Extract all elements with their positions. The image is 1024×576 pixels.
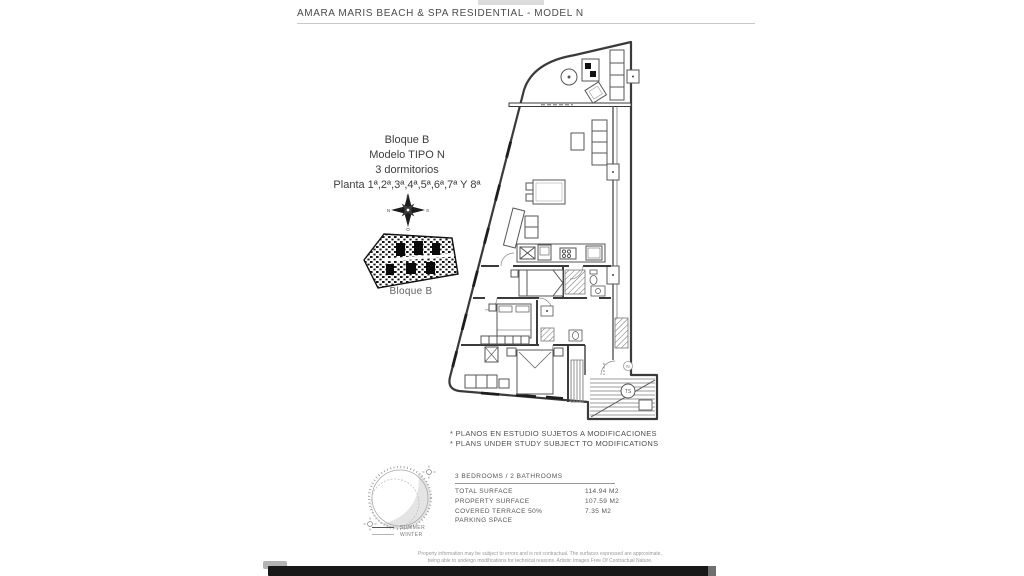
plan-note-en: * PLANS UNDER STUDY SUBJECT TO MODIFICAT… [450, 439, 658, 449]
horizontal-scrollbar[interactable] [268, 566, 716, 576]
row-label: PROPERTY SURFACE [455, 498, 529, 505]
table-row: COVERED TERRACE 50% 7.35 M2 [455, 508, 620, 518]
compass-letter-right: S [426, 208, 429, 213]
surface-table-header: 3 BEDROOMS / 2 BATHROOMS [455, 473, 620, 480]
disclaimer-line1: Property information may be subject to e… [312, 551, 768, 558]
page-top-edge [478, 0, 544, 5]
north-marker-label: N [626, 364, 629, 369]
service-shaft [571, 360, 583, 402]
floor-plan: TS N [441, 30, 665, 422]
row-label: TOTAL SURFACE [455, 488, 513, 495]
compass-letter-top: E [406, 194, 409, 199]
legend-summer: SUMMER [372, 524, 425, 531]
row-label: PARKING SPACE [455, 517, 512, 524]
legal-disclaimer: Property information may be subject to e… [312, 551, 768, 565]
legend-winter: WINTER [372, 531, 425, 538]
corridor-wardrobe [615, 318, 628, 348]
row-label: COVERED TERRACE 50% [455, 508, 542, 515]
scrollbar-tip [708, 566, 716, 576]
winter-line-swatch [372, 534, 394, 535]
stairs-circle-label: TS [625, 389, 632, 395]
plan-notes: * PLANOS EN ESTUDIO SUJETOS A MODIFICACI… [450, 429, 658, 449]
summer-line-swatch [372, 527, 394, 529]
row-value: 114.94 M2 [585, 488, 619, 495]
sun-icon-summer [423, 466, 436, 479]
compass-letter-left: N [387, 208, 390, 213]
row-value: 107.59 M2 [585, 498, 619, 505]
page-title: AMARA MARIS BEACH & SPA RESIDENTIAL - MO… [297, 8, 767, 19]
sun-legend: SUMMER WINTER [372, 524, 425, 538]
table-row: TOTAL SURFACE 114.94 M2 [455, 488, 620, 498]
surface-table-rule [455, 483, 615, 484]
terrace-divider-wall [509, 103, 631, 107]
bedroom1 [511, 270, 563, 296]
title-rule [297, 23, 755, 24]
brochure-page: AMARA MARIS BEACH & SPA RESIDENTIAL - MO… [0, 0, 1024, 576]
plan-note-es: * PLANOS EN ESTUDIO SUJETOS A MODIFICACI… [450, 429, 658, 439]
row-value: 7.35 M2 [585, 508, 611, 515]
disclaimer-line2: being able to undergo modifications for … [312, 558, 768, 565]
surface-table: 3 BEDROOMS / 2 BATHROOMS TOTAL SURFACE 1… [455, 473, 620, 527]
table-row: PROPERTY SURFACE 107.59 M2 [455, 498, 620, 508]
table-row: PARKING SPACE [455, 517, 620, 527]
